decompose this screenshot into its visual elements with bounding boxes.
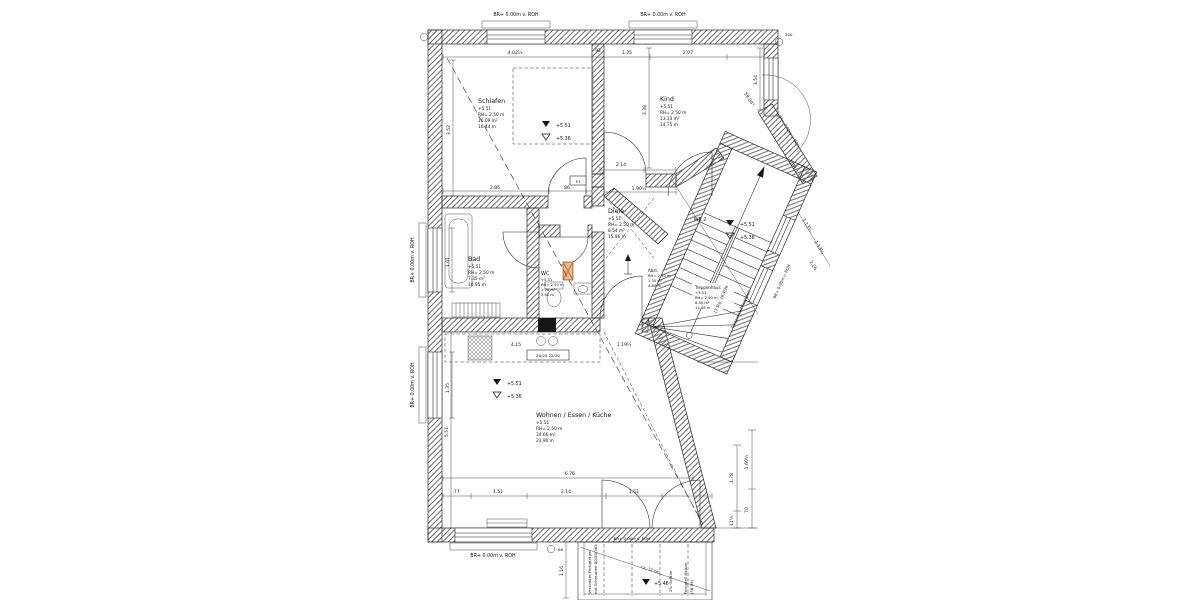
- room-name: Schlafen: [478, 98, 505, 105]
- stair-window-2: [745, 265, 772, 305]
- room-perimeter: 14.75 m: [660, 122, 678, 128]
- dim: 4.15: [511, 342, 521, 348]
- dim-angle: 59.04°: [742, 91, 755, 107]
- room-name: Wohnen / Essen / Küche: [536, 412, 611, 419]
- parapet-label-top-1: BR+ 0.00m v. ROH: [493, 12, 539, 18]
- door-tag: F3: [576, 179, 581, 184]
- girder-note-2: mit Schrauben 80/50/365: [593, 544, 598, 594]
- radiator: [452, 303, 500, 317]
- kitchen-counter: 20/20 22/30: [445, 334, 600, 362]
- dim: 2.07: [683, 50, 693, 56]
- parapet-label-top-2: BR+ 0.00m v. ROH: [640, 12, 686, 18]
- dim: 1.51: [629, 489, 639, 495]
- room-name: Bad: [468, 256, 480, 263]
- window-left-2: [428, 352, 442, 418]
- dim: 1.60½: [743, 454, 750, 469]
- room-name: Abst.: [648, 268, 658, 273]
- dim: 1.25: [622, 50, 632, 56]
- room-perimeter: 10.95 m: [468, 282, 486, 288]
- room-perimeter: 16.44 m: [478, 124, 496, 130]
- window-top-2: [634, 30, 692, 44]
- dim: 3.38: [642, 105, 648, 115]
- floor-plan-page: F3 20/20 22/30: [0, 0, 1200, 600]
- door-wohnen: [600, 276, 642, 318]
- door-balcony-left: [602, 480, 650, 528]
- dim: 1.13½: [800, 217, 814, 234]
- dim: 2.14: [616, 162, 626, 168]
- dim: 1.19½: [617, 341, 632, 348]
- room-name: Diele: [608, 208, 624, 215]
- dim: 1.51: [493, 489, 503, 495]
- balcony-part-note-2: (FB 04): [689, 579, 694, 594]
- room-perimeter: 5.60 m: [541, 293, 554, 297]
- dim: 1.54: [753, 75, 759, 85]
- room-level: +5.51: [541, 278, 552, 282]
- section-mark-label: 500: [785, 32, 793, 37]
- concrete-column: [538, 318, 556, 332]
- room-area: 16.09 m²: [478, 118, 498, 124]
- dim: 2.14: [561, 489, 571, 495]
- balcony: ca. 12 cm Verzinkter Fertigträger mit Sc…: [578, 542, 712, 600]
- level-value: +5.51: [556, 123, 571, 129]
- room-height: RH= 2.50 m: [541, 283, 564, 287]
- duct-shaft: [563, 262, 573, 280]
- direction-arrow: [624, 254, 632, 274]
- dim: 1.16: [559, 566, 565, 576]
- parapet-label-left-1: BR+ 0.00m v. ROH: [410, 237, 416, 283]
- level-value: +5.36: [740, 235, 755, 241]
- room-area: 6.50 m²: [695, 301, 710, 305]
- room-level: +5.51: [695, 291, 706, 295]
- room-perimeter: 23.90 m: [536, 438, 554, 444]
- room-level: +5.51: [608, 216, 621, 222]
- dormer-outline: [513, 68, 593, 144]
- room-level: +5.51: [660, 104, 673, 110]
- dim: 3.52: [446, 125, 452, 135]
- room-height: RH= 2.50 m: [648, 274, 671, 278]
- dim: 2.86: [490, 185, 500, 191]
- window-right: [764, 58, 778, 100]
- level-marker-balcony: +5.46: [642, 579, 669, 587]
- balcony-part-note: Fertigteil Balkon: [683, 562, 688, 594]
- stair-arrow-head: [757, 165, 768, 178]
- girder-note-1: Verzinkter Fertigträger: [587, 550, 592, 594]
- room-stamp-wohnen: Wohnen / Essen / Küche +5.51 RH= 2.50 m …: [536, 412, 611, 444]
- balcony-gap-note: ca. 12 cm: [641, 564, 661, 574]
- room-height: RH= 2.50 m: [478, 112, 504, 118]
- section-mark: [420, 33, 428, 41]
- room-area: 1.35 m²: [648, 279, 663, 283]
- dim: 70: [744, 507, 750, 513]
- room-name: WC: [541, 271, 550, 277]
- parapet-label-bottom: BR+ 0.00m v. ROH: [470, 553, 516, 559]
- kitchen-sink: [468, 336, 492, 360]
- parapet-label-diag-2: BR+ 0.00m v. ROH: [772, 264, 792, 300]
- level-value: +5.46: [654, 581, 669, 587]
- door-wc: [560, 237, 588, 265]
- room-stamp-schlafen: Schlafen +5.51 RH= 2.50 m 16.09 m² 16.44…: [478, 98, 505, 130]
- dim: 86: [564, 185, 570, 191]
- dim: 1.01: [445, 257, 451, 267]
- room-area: 7.35 m²: [468, 276, 485, 282]
- room-level: +5.51: [478, 106, 491, 112]
- level-marker-wohnen: +5.51 +5.36: [493, 379, 522, 400]
- window-left-1: [428, 228, 442, 292]
- section-mark: [547, 545, 555, 553]
- room-area: 34.66 m²: [536, 432, 556, 438]
- dim: 1.78: [729, 473, 735, 483]
- room-area: 1.98 m²: [541, 288, 556, 292]
- hob-burner: [537, 337, 546, 346]
- room-area: 13.33 m²: [660, 116, 680, 122]
- beam-tag: 20/20 22/30: [536, 353, 560, 358]
- balcony-slope-note: 2% Gefälle: [668, 570, 673, 592]
- room-level: +5.51: [468, 264, 481, 270]
- window-top-1: [487, 30, 545, 44]
- level-marker-schlafen: +5.51 +5.36: [542, 121, 571, 142]
- section-mark-label: 66: [558, 547, 563, 552]
- level-value: +5.51: [740, 222, 755, 228]
- room-height: RH= 2.50 m: [695, 296, 718, 300]
- dim: 1.13½: [812, 239, 826, 256]
- room-perimeter: 15.96 m: [608, 234, 626, 240]
- dim: 6.76: [565, 471, 575, 477]
- floor-plan-drawing: F3 20/20 22/30: [0, 0, 1200, 600]
- stair-wing: [635, 131, 816, 374]
- dim: 11½: [728, 515, 735, 526]
- room-perimeter: 4.80 m: [648, 284, 661, 288]
- dim: 1.35: [445, 383, 451, 393]
- dim: 92: [595, 48, 601, 54]
- parapet-label-balcony: BR+ 0.00m v. ROH: [614, 536, 651, 541]
- room-name: Kind: [660, 96, 674, 103]
- parapet-label-left-2: BR+ 0.00m v. ROH: [410, 362, 416, 408]
- dim: .77: [452, 489, 459, 495]
- dim: 4.02½: [508, 49, 523, 56]
- room-stamp-bad: Bad +5.51 RH= 2.50 m 7.35 m² 10.95 m: [468, 256, 494, 288]
- room-stamp-wc: WC +5.51 RH= 2.50 m 1.98 m² 5.60 m: [541, 271, 564, 297]
- room-height: RH= 2.50 m: [660, 110, 686, 116]
- room-stamp-kind: Kind +5.51 RH= 2.50 m 13.33 m² 14.75 m: [660, 96, 686, 128]
- stair-window-1: [768, 215, 795, 255]
- room-perimeter: 11.08 m: [695, 306, 711, 310]
- room-name: Treppenhaus: [694, 285, 721, 290]
- dim: 2.26: [808, 260, 819, 272]
- hob-burner: [549, 337, 558, 346]
- level-value: +5.36: [556, 136, 571, 142]
- dim: 1.90½: [632, 185, 647, 192]
- unit-label: WE 2: [694, 217, 707, 223]
- room-height: RH= 2.50 m: [608, 222, 634, 228]
- level-value: +5.36: [507, 394, 522, 400]
- level-value: +5.51: [507, 381, 522, 387]
- dim: 5.51: [444, 427, 450, 437]
- room-height: RH= 2.50 m: [536, 426, 562, 432]
- room-height: RH= 2.50 m: [468, 270, 494, 276]
- room-level: +5.51: [536, 420, 549, 426]
- window-bottom: [455, 528, 532, 542]
- room-area: 8.54 m²: [608, 228, 625, 234]
